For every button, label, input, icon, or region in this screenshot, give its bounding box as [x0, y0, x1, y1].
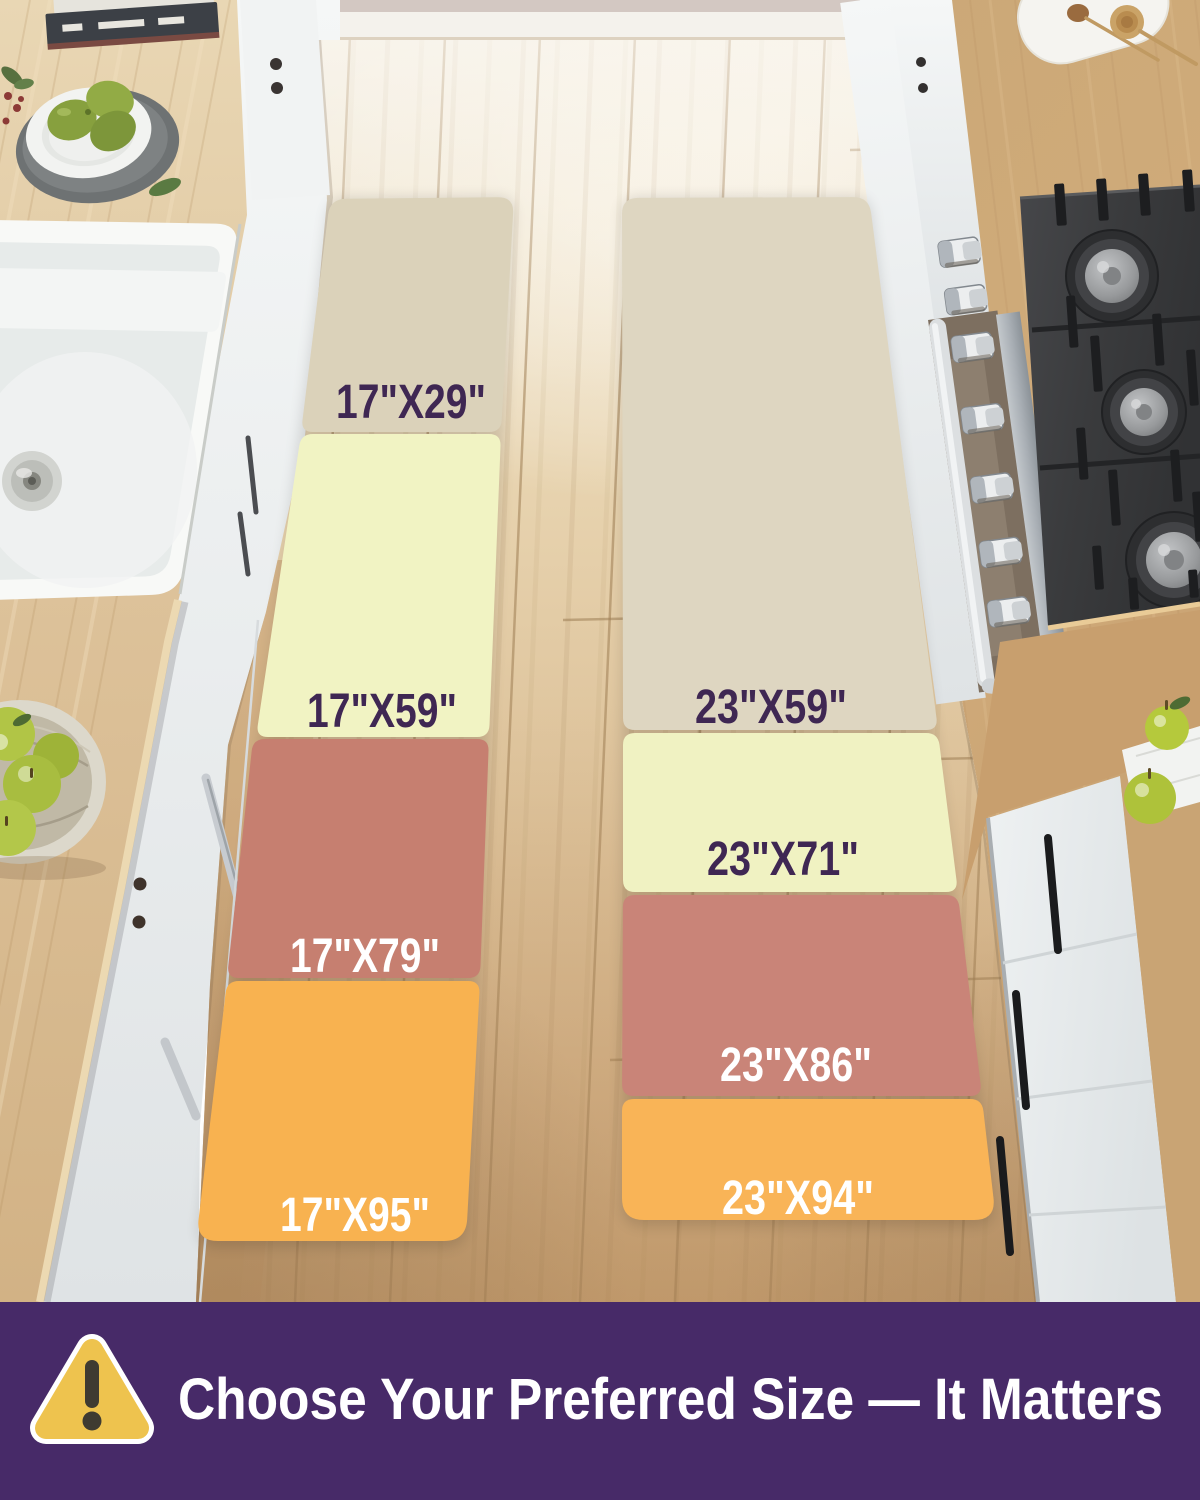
- svg-text:23"X59": 23"X59": [695, 681, 847, 734]
- svg-text:17"X79": 17"X79": [290, 930, 440, 983]
- svg-text:23"X94": 23"X94": [722, 1172, 874, 1225]
- svg-text:17"X59": 17"X59": [307, 685, 457, 738]
- svg-text:23"X71": 23"X71": [707, 833, 859, 886]
- svg-text:23"X86": 23"X86": [720, 1039, 872, 1092]
- svg-text:17"X95": 17"X95": [280, 1189, 430, 1242]
- svg-text:17"X29": 17"X29": [336, 376, 486, 429]
- svg-text:Choose Your Preferred Size — I: Choose Your Preferred Size — It Matters: [178, 1367, 1163, 1432]
